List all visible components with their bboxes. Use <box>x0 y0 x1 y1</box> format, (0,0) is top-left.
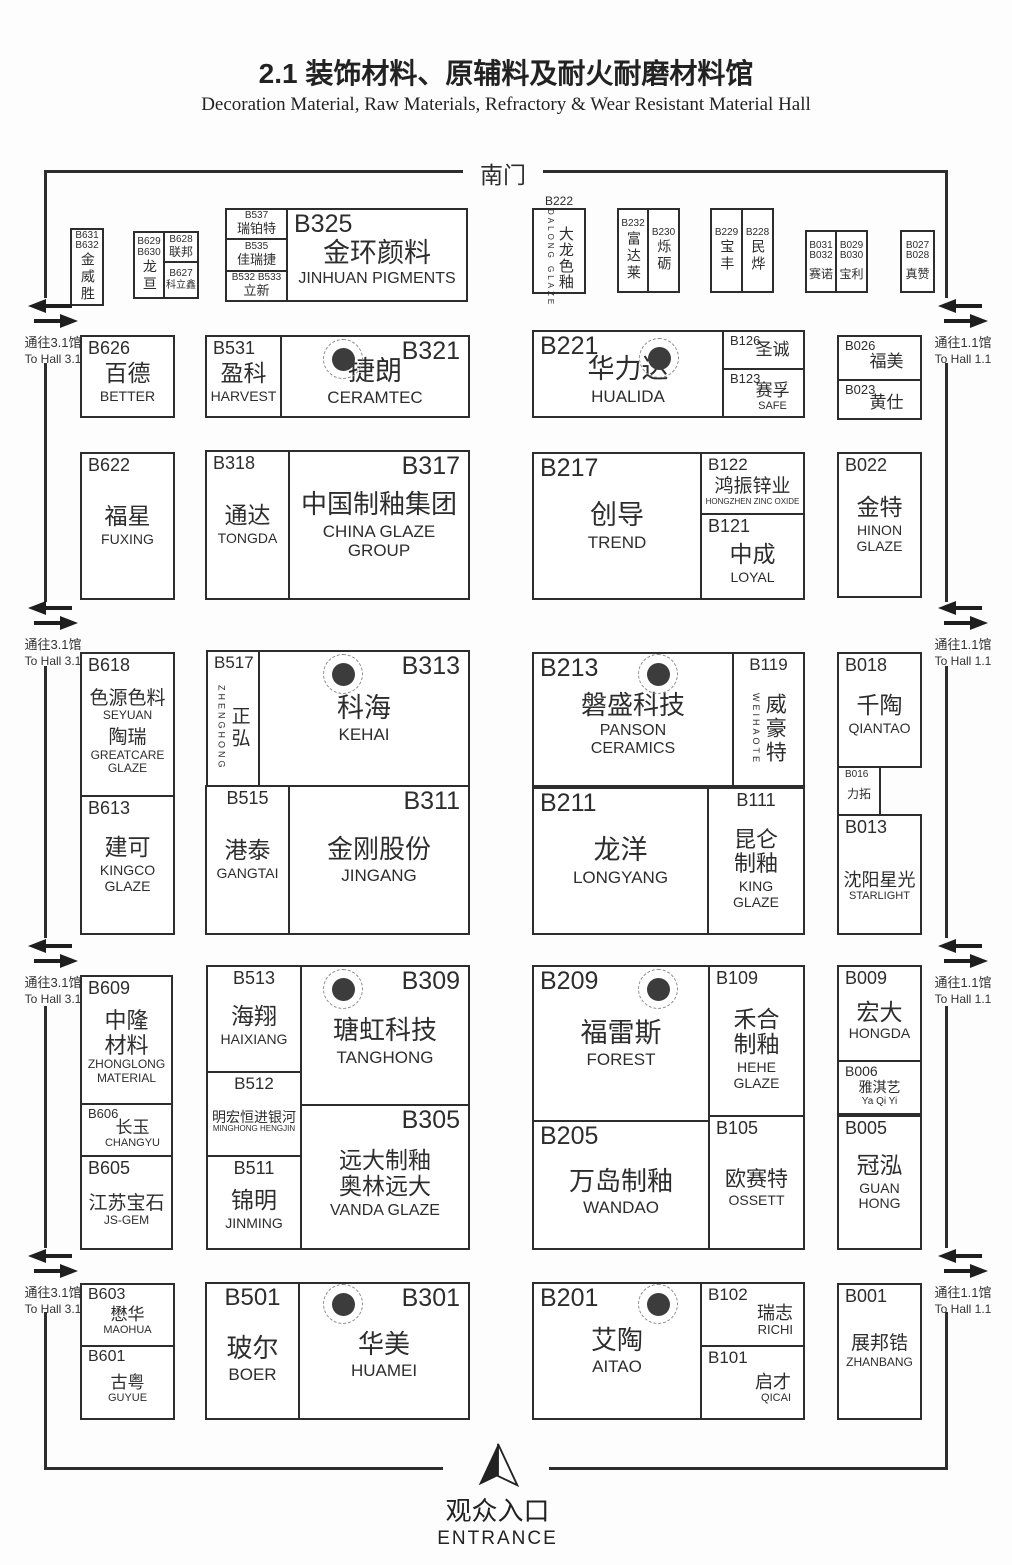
booth-id: B006 <box>845 1064 878 1078</box>
booth-b232: B232富达莱 <box>617 208 649 293</box>
booth-name-en: JINHUAN PIGMENTS <box>298 270 455 288</box>
booth-id: B305 <box>402 1108 460 1134</box>
booth-b627: B627科立鑫 <box>163 261 199 299</box>
passage-label-cn: 通往1.1馆 <box>934 332 991 351</box>
booth-name-cn: 赛孚 <box>756 381 790 400</box>
booth-name-cn: 创导 <box>590 500 644 530</box>
booth-name-cn: 雅淇艺 <box>859 1080 901 1096</box>
booth-b126: B126圣诚 <box>722 330 805 370</box>
booth-id: B111 <box>709 791 803 809</box>
booth-name-en: PANSON CERAMICS <box>591 722 675 758</box>
booth-id: B325 <box>294 212 352 238</box>
booth-id: B205 <box>540 1124 598 1150</box>
booth-name-en: JINMING <box>225 1216 283 1232</box>
booth-b213: B213磐盛科技PANSON CERAMICS <box>532 652 734 787</box>
booth-id: B031 B032 <box>809 241 832 261</box>
wall-right-seg <box>945 363 948 602</box>
booth-b123: B123赛孚SAFE <box>722 368 805 418</box>
booth-id: B601 <box>88 1349 125 1365</box>
booth-name-en: HONGDA <box>849 1026 910 1042</box>
passage-label-en: To Hall 1.1 <box>935 1302 992 1316</box>
booth-name-en: CERAMTEC <box>327 388 422 407</box>
booth-name-en: KEHAI <box>338 725 389 744</box>
booth-name-en: HEHE GLAZE <box>734 1060 780 1091</box>
booth-b517: B517ZHENGHONG正弘 <box>206 650 260 787</box>
booth-b105: B105欧赛特OSSETT <box>708 1115 805 1250</box>
booth-name-en: MINGHONG HENGJIN <box>213 1125 295 1134</box>
booth-name-cn: 盈科 <box>221 361 267 387</box>
pillar-icon <box>638 654 678 694</box>
booth-name-en: ZHENGHONG <box>216 685 226 771</box>
booth-id: B605 <box>88 1159 130 1177</box>
passage-to-hall-1-1: 通往1.1馆 To Hall 1.1 <box>912 298 1012 366</box>
booth-b009: B009宏大HONGDA <box>837 965 922 1062</box>
entrance-label-cn: 观众入口 <box>445 1491 549 1528</box>
booth-id: B201 <box>540 1286 598 1312</box>
booth-name-cn: 海翔 <box>231 1004 277 1030</box>
booth-id: B102 <box>708 1286 748 1303</box>
booth-id: B027 B028 <box>906 241 929 261</box>
booth-id: B613 <box>88 799 130 817</box>
booth-name-cn: 江苏宝石 <box>88 1193 164 1214</box>
booth-b305: B305远大制釉 奥林远大VANDA GLAZE <box>300 1104 470 1250</box>
booth-name-en: WEIHAOTE <box>751 693 761 765</box>
booth-name-cn: 艾陶 <box>591 1326 643 1355</box>
pillar-icon <box>323 969 363 1009</box>
passage-label-en: To Hall 3.1 <box>25 992 82 1006</box>
booth-name-cn: 真赞 <box>905 268 929 281</box>
booth-id: B018 <box>845 656 887 674</box>
booth-b230: B230烁砺 <box>647 208 680 293</box>
booth-id: B023 <box>845 383 875 396</box>
booth-name-cn: 欧赛特 <box>725 1168 788 1192</box>
booth-name-cn: 福美 <box>870 352 904 371</box>
booth-name-cn: 金威胜 <box>79 252 95 303</box>
booth-id: B101 <box>708 1349 748 1366</box>
wall-left-seg <box>44 1312 47 1470</box>
booth-id: B230 <box>652 228 675 238</box>
booth-name-cn: 通达 <box>225 503 271 529</box>
booth-name-cn: 锦明 <box>231 1188 277 1214</box>
booth-id: B313 <box>402 654 460 680</box>
booth-name-en: GUYUE <box>108 1392 147 1404</box>
booth-id: B016 <box>845 770 868 780</box>
booth-id: B026 <box>845 339 875 352</box>
passage-to-hall-3-1: 通往3.1馆 To Hall 3.1 <box>2 600 104 668</box>
booth-name-en: HINON GLAZE <box>857 523 903 554</box>
wall-left-seg <box>44 170 47 298</box>
wall-left-seg <box>44 363 47 602</box>
booth-id: B126 <box>730 334 760 347</box>
booth-name-cn: 鸿振锌业 <box>714 476 790 497</box>
booth-name-cn: 远大制釉 奥林远大 <box>339 1148 431 1200</box>
booth-name-en: CHINA GLAZE GROUP <box>323 522 435 560</box>
passage-label-en: To Hall 3.1 <box>25 1302 82 1316</box>
booth-name-en: QICAI <box>761 1392 791 1404</box>
booth-b101: B101启才QICAI <box>700 1345 805 1420</box>
booth-name-en: LOYAL <box>730 570 774 586</box>
booth-name-cn: 金特 <box>857 495 903 521</box>
pillar-icon <box>323 654 363 694</box>
booth-name-en: SAFE <box>758 400 787 412</box>
wall-left-seg <box>44 666 47 938</box>
pillar-icon <box>638 1284 678 1324</box>
booth-id: B105 <box>716 1119 758 1137</box>
booth-id: B222 <box>545 195 573 207</box>
booth-b102: B102瑞志RICHI <box>700 1282 805 1347</box>
pillar-icon <box>639 338 679 378</box>
booth-name-en: WANDAO <box>583 1198 659 1217</box>
booth-name-cn: 华美 <box>358 1330 410 1359</box>
booth-b531: B531盈科HARVEST <box>205 335 282 418</box>
booth-id: B109 <box>716 969 758 987</box>
passage-label-en: To Hall 3.1 <box>25 654 82 668</box>
booth-name-en: HAIXIANG <box>221 1032 288 1048</box>
booth-name-cn: 瑞志 <box>757 1303 793 1323</box>
booth-b606: B606长玉CHANGYU <box>80 1103 173 1157</box>
booth-name-en: OSSETT <box>728 1193 784 1209</box>
booth-b631: B631 B632金威胜 <box>70 228 104 306</box>
booth-id: B211 <box>540 791 597 817</box>
booth-id: B022 <box>845 456 887 474</box>
booth-name-en: AITAO <box>592 1357 642 1376</box>
passage-label-cn: 通往1.1馆 <box>934 972 991 991</box>
passage-arrows-icon <box>938 600 988 632</box>
booth-id: B119 <box>734 656 803 673</box>
booth-b217: B217创导TREND <box>532 452 702 600</box>
booth-b023: B023黄仕 <box>837 379 922 420</box>
booth-b618: B618色源色料SEYUAN陶瑞GREATCARE GLAZE <box>80 652 175 797</box>
booth-name-cn: 科海 <box>337 693 391 723</box>
booth-id: B629 B630 <box>137 237 160 257</box>
passage-label-en: To Hall 1.1 <box>935 992 992 1006</box>
booth-b605: B605江苏宝石JS-GEM <box>80 1155 173 1250</box>
booth-name-cn: 建可 <box>105 835 151 861</box>
booth-name-cn: 民烨 <box>750 239 766 273</box>
booth-name-cn: 金刚股份 <box>327 835 431 864</box>
booth-name-cn: 宏大 <box>857 1000 903 1026</box>
wall-right-seg <box>945 170 948 298</box>
booth-b006: B006雅淇艺Ya Qi Yi <box>837 1060 922 1115</box>
booth-name-cn: 福星 <box>105 504 151 530</box>
pillar-icon <box>323 339 363 379</box>
booth-name-en: TREND <box>588 533 647 552</box>
booth-id: B628 <box>169 235 192 245</box>
booth-b029: B029 B030宝利 <box>835 230 868 293</box>
booth-id: B217 <box>540 456 598 482</box>
booth-id: B221 <box>540 334 598 360</box>
booth-name-cn: 冠泓 <box>857 1153 903 1179</box>
booth-b535: B535佳瑞捷 <box>225 238 288 272</box>
booth-b311: B311金刚股份JINGANG <box>288 785 470 935</box>
booth-b005: B005冠泓GUAN HONG <box>837 1115 922 1250</box>
booth-name-en: CHANGYU <box>105 1137 160 1149</box>
booth-name-cn: 富达莱 <box>625 231 641 282</box>
passage-label-en: To Hall 1.1 <box>935 654 992 668</box>
booth-id: B606 <box>88 1107 118 1120</box>
passage-arrows-icon <box>938 1248 988 1280</box>
booth-b628: B628联邦 <box>163 231 199 263</box>
wall-right-seg <box>945 1006 948 1248</box>
booth-id: B531 <box>213 339 255 357</box>
booth-name-cn: 中国制釉集团 <box>301 490 457 519</box>
booth-id: B122 <box>708 456 748 473</box>
entrance-arrow-icon <box>475 1441 521 1489</box>
booth-name-cn: 万岛制釉 <box>569 1167 673 1196</box>
booth-b228: B228民烨 <box>741 208 774 293</box>
booth-name-cn: 明宏恒进银河 <box>212 1110 296 1126</box>
booth-b001: B001展邦锆ZHANBANG <box>837 1283 922 1420</box>
wall-top-left <box>44 170 465 173</box>
booth-id: B513 <box>208 969 300 987</box>
booth-name-cn: 玻尔 <box>226 1334 278 1363</box>
passage-arrows-icon <box>28 298 78 330</box>
booth-b537: B537瑞铂特 <box>225 208 288 240</box>
booth-id: B232 <box>621 219 644 229</box>
booth-name-en: GANGTAI <box>217 866 279 882</box>
booth-id: B627 <box>169 269 192 279</box>
booth-b512: B512明宏恒进银河MINGHONG HENGJIN <box>206 1071 302 1157</box>
booth-name-en: FOREST <box>587 1050 656 1069</box>
booth-b109: B109禾合 制釉HEHE GLAZE <box>708 965 805 1117</box>
booth-id: B537 <box>245 211 268 221</box>
booth-b313: B313科海KEHAI <box>258 650 470 787</box>
passage-to-hall-3-1: 通往3.1馆 To Hall 3.1 <box>2 1248 104 1316</box>
booth-name-cn: 联邦 <box>169 246 193 259</box>
wall-right-seg <box>945 666 948 938</box>
booth-name-en: STARLIGHT <box>849 890 910 902</box>
booth-name-cn: 百德 <box>105 361 151 387</box>
booth-name-cn: 沈阳星光 <box>844 870 916 890</box>
passage-label-cn: 通往1.1馆 <box>934 634 991 653</box>
page-subtitle: Decoration Material, Raw Materials, Refr… <box>0 94 1012 116</box>
booth-id: B515 <box>207 789 288 807</box>
booth-name-en: Ya Qi Yi <box>862 1096 897 1107</box>
passage-arrows-icon <box>28 938 78 970</box>
booth-b317: B317中国制釉集团CHINA GLAZE GROUP <box>288 450 470 600</box>
booth-b016: B016力拓 <box>837 766 881 816</box>
booth-name-en: VANDA GLAZE <box>330 1202 440 1220</box>
booth-name-cn: 科立鑫 <box>166 280 196 291</box>
booth-name-cn: 磐盛科技 <box>581 691 685 720</box>
passage-to-hall-1-1: 通往1.1馆 To Hall 1.1 <box>912 600 1012 668</box>
booth-name-cn: 禾合 制釉 <box>734 1007 780 1059</box>
booth-name-en: RICHI <box>758 1323 793 1338</box>
booth-name-cn: 赛诺 <box>809 268 833 281</box>
booth-name-cn: 瑭虹科技 <box>333 1016 437 1045</box>
booth-name-en: ZHONGLONG MATERIAL <box>88 1058 165 1085</box>
booth-b501: B501玻尔BOER <box>205 1282 300 1420</box>
booth-b229: B229宝丰 <box>710 208 743 293</box>
booth-b613: B613建可KINGCO GLAZE <box>80 795 175 935</box>
booth-name-en: SEYUAN <box>103 709 152 722</box>
booth-id: B511 <box>208 1159 300 1177</box>
passage-arrows-icon <box>28 600 78 632</box>
booth-b515: B515港泰GANGTAI <box>205 785 290 935</box>
booth-id: B001 <box>845 1287 887 1305</box>
booth-name-cn: 金环颜料 <box>323 238 431 268</box>
booth-name-en: ZHANBANG <box>846 1356 913 1369</box>
booth-id: B301 <box>402 1286 460 1312</box>
booth-id: B123 <box>730 372 760 385</box>
booth-b325: B325金环颜料JINHUAN PIGMENTS <box>286 208 468 302</box>
booth-name-cn: 大龙色釉 <box>556 226 573 290</box>
booth-name-cn: 立新 <box>243 284 269 299</box>
pillar-icon <box>323 1284 363 1324</box>
booth-b027: B027 B028真赞 <box>900 230 935 293</box>
pillar-icon <box>638 969 678 1009</box>
booth-name-en: JINGANG <box>341 866 417 885</box>
booth-id: B209 <box>540 969 598 995</box>
booth-id: B013 <box>845 818 887 836</box>
booth-name-cn: 龙亘 <box>141 259 157 293</box>
booth-name-en: QIANTAO <box>849 721 911 737</box>
booth-name-cn: 港泰 <box>225 838 271 864</box>
booth-b031: B031 B032赛诺 <box>805 230 837 293</box>
booth-b622: B622福星FUXING <box>80 452 175 600</box>
booth-name-en: TANGHONG <box>337 1048 434 1067</box>
booth-id: B517 <box>214 654 254 671</box>
passage-to-hall-3-1: 通往3.1馆 To Hall 3.1 <box>2 298 104 366</box>
booth-name-en: HARVEST <box>211 389 277 405</box>
passage-arrows-icon <box>938 298 988 330</box>
booth-name-en: KING GLAZE <box>733 879 779 910</box>
booth-name-cn: 佳瑞捷 <box>237 253 276 268</box>
booth-name-cn: 千陶 <box>857 693 903 719</box>
entrance-label-en: ENTRANCE <box>437 1528 558 1550</box>
booth-id: B228 <box>746 228 769 238</box>
passage-label-cn: 通往3.1馆 <box>24 972 81 991</box>
passage-label-cn: 通往3.1馆 <box>24 1282 81 1301</box>
booth-b022: B022金特HINON GLAZE <box>837 452 922 598</box>
booth-name-cn: 宝利 <box>839 268 863 281</box>
booth-id: B121 <box>708 517 750 535</box>
passage-label-cn: 通往1.1馆 <box>934 1282 991 1301</box>
booth-name-en: HONGZHEN ZINC OXIDE <box>706 498 800 507</box>
booth-b532: B532 B533立新 <box>225 270 288 302</box>
booth-b513: B513海翔HAIXIANG <box>206 965 302 1073</box>
booth-id: B317 <box>402 454 460 480</box>
booth-id: B311 <box>403 789 460 815</box>
booth-id: B029 B030 <box>840 241 863 261</box>
booth-name-en: JS-GEM <box>104 1214 149 1227</box>
booth-name-cn: 福雷斯 <box>581 1018 662 1048</box>
booth-name-en: DALONG GLAZE <box>545 209 554 307</box>
booth-b629: B629 B630龙亘 <box>133 231 165 299</box>
booth-name-cn: 烁砺 <box>656 239 672 273</box>
booth-name-cn: 龙洋 <box>594 835 648 865</box>
booth-id: B622 <box>88 456 130 474</box>
booth-b205: B205万岛制釉WANDAO <box>532 1120 710 1250</box>
wall-top-right <box>541 170 948 173</box>
passage-to-hall-1-1: 通往1.1馆 To Hall 1.1 <box>912 938 1012 1006</box>
booth-id: B318 <box>213 454 255 472</box>
booth-name-cn: 长玉 <box>116 1118 150 1137</box>
entrance-block: 观众入口 ENTRANCE <box>380 1441 615 1550</box>
booth-name-cn: 瑞铂特 <box>237 222 276 237</box>
booth-name-en: BETTER <box>100 389 155 405</box>
booth-b013: B013沈阳星光STARLIGHT <box>837 814 922 935</box>
passage-arrows-icon <box>938 938 988 970</box>
booth-id: B309 <box>402 969 460 995</box>
booth-b122: B122鸿振锌业HONGZHEN ZINC OXIDE <box>700 452 805 515</box>
booth-name-cn: 威豪特 <box>763 693 787 765</box>
booth-name-en: KINGCO GLAZE <box>100 863 155 894</box>
booth-b222: B222DALONG GLAZE大龙色釉 <box>532 208 586 294</box>
booth-name-cn: 昆仑 制釉 <box>734 828 778 877</box>
booth-name-en: HUAMEI <box>351 1361 417 1380</box>
booth-name-en: LONGYANG <box>573 868 668 887</box>
booth-id: B501 <box>207 1286 298 1310</box>
booth-id: B512 <box>208 1075 300 1092</box>
booth-name-cn2: 陶瑞 <box>108 727 146 748</box>
booth-name-cn: 圣诚 <box>756 340 790 359</box>
passage-label-cn: 通往3.1馆 <box>24 634 81 653</box>
booth-b601: B601古粤GUYUE <box>80 1345 175 1420</box>
hall-floor-plan: 2.1 装饰材料、原辅料及耐火耐磨材料馆 Decoration Material… <box>0 0 1012 1565</box>
booth-name-cn: 正弘 <box>228 706 249 750</box>
booth-b111: B111昆仑 制釉KING GLAZE <box>707 787 805 935</box>
passage-label-en: To Hall 3.1 <box>25 352 82 366</box>
booth-b119: B119WEIHAOTE威豪特 <box>732 652 805 787</box>
booth-name-en: BOER <box>228 1365 276 1384</box>
booth-id: B213 <box>540 656 598 682</box>
booth-name-en: GUAN HONG <box>859 1181 901 1212</box>
booth-id: B532 B533 <box>232 273 282 283</box>
booth-name-cn: 色源色料 <box>89 688 165 709</box>
booth-b018: B018千陶QIANTAO <box>837 652 922 768</box>
booth-id: B631 B632 <box>75 231 98 251</box>
booth-name-cn: 展邦锆 <box>851 1333 908 1354</box>
booth-name-cn: 启才 <box>755 1372 791 1392</box>
booth-b211: B211龙洋LONGYANG <box>532 787 709 935</box>
booth-id: B005 <box>845 1119 887 1137</box>
booth-b321: B321捷朗CERAMTEC <box>280 335 470 418</box>
booth-name-en2: GREATCARE GLAZE <box>91 749 165 776</box>
booth-b209: B209福雷斯FOREST <box>532 965 710 1122</box>
booth-id: B321 <box>402 339 460 365</box>
booth-id: B229 <box>715 228 738 238</box>
booth-name-cn: 中成 <box>730 542 776 568</box>
booth-b121: B121中成LOYAL <box>700 513 805 600</box>
booth-name-cn: 力拓 <box>847 788 871 801</box>
booth-name-en: FUXING <box>101 532 154 548</box>
passage-to-hall-3-1: 通往3.1馆 To Hall 3.1 <box>2 938 104 1006</box>
booth-name-en: MAOHUA <box>103 1324 151 1336</box>
booth-name-cn: 懋华 <box>111 1305 145 1324</box>
passage-to-hall-1-1: 通往1.1馆 To Hall 1.1 <box>912 1248 1012 1316</box>
wall-left-seg <box>44 1006 47 1248</box>
booth-b221: B221华力达HUALIDA <box>532 330 724 418</box>
south-gate-label: 南门 <box>463 156 543 190</box>
booth-name-cn: 中隆 材料 <box>104 1009 148 1058</box>
booth-b511: B511锦明JINMING <box>206 1155 302 1250</box>
booth-b026: B026福美 <box>837 335 922 381</box>
booth-name-cn: 宝丰 <box>719 239 735 273</box>
booth-name-cn: 古粤 <box>111 1373 145 1392</box>
wall-right-seg <box>945 1312 948 1470</box>
booth-id: B009 <box>845 969 887 987</box>
passage-arrows-icon <box>28 1248 78 1280</box>
booth-name-en: TONGDA <box>218 531 278 547</box>
passage-label-cn: 通往3.1馆 <box>24 332 81 351</box>
passage-label-en: To Hall 1.1 <box>935 352 992 366</box>
booth-name-en: HUALIDA <box>591 387 665 406</box>
booth-b318: B318通达TONGDA <box>205 450 290 600</box>
booth-id: B535 <box>245 242 268 252</box>
page-title: 2.1 装饰材料、原辅料及耐火耐磨材料馆 <box>0 52 1012 92</box>
